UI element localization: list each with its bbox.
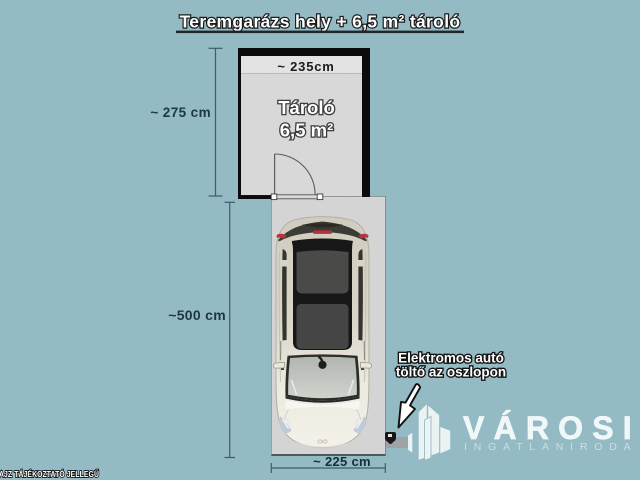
- svg-text:AJZ TÁJÉKOZTATÓ JELLEGŰ: AJZ TÁJÉKOZTATÓ JELLEGŰ: [0, 468, 99, 479]
- svg-text:Elektromos autó: Elektromos autó: [398, 351, 504, 366]
- svg-text:Tároló: Tároló: [278, 97, 335, 118]
- svg-text:Teremgarázs hely + 6,5 m² táro: Teremgarázs hely + 6,5 m² tároló: [180, 11, 461, 31]
- svg-text:6,5 m²: 6,5 m²: [280, 120, 333, 141]
